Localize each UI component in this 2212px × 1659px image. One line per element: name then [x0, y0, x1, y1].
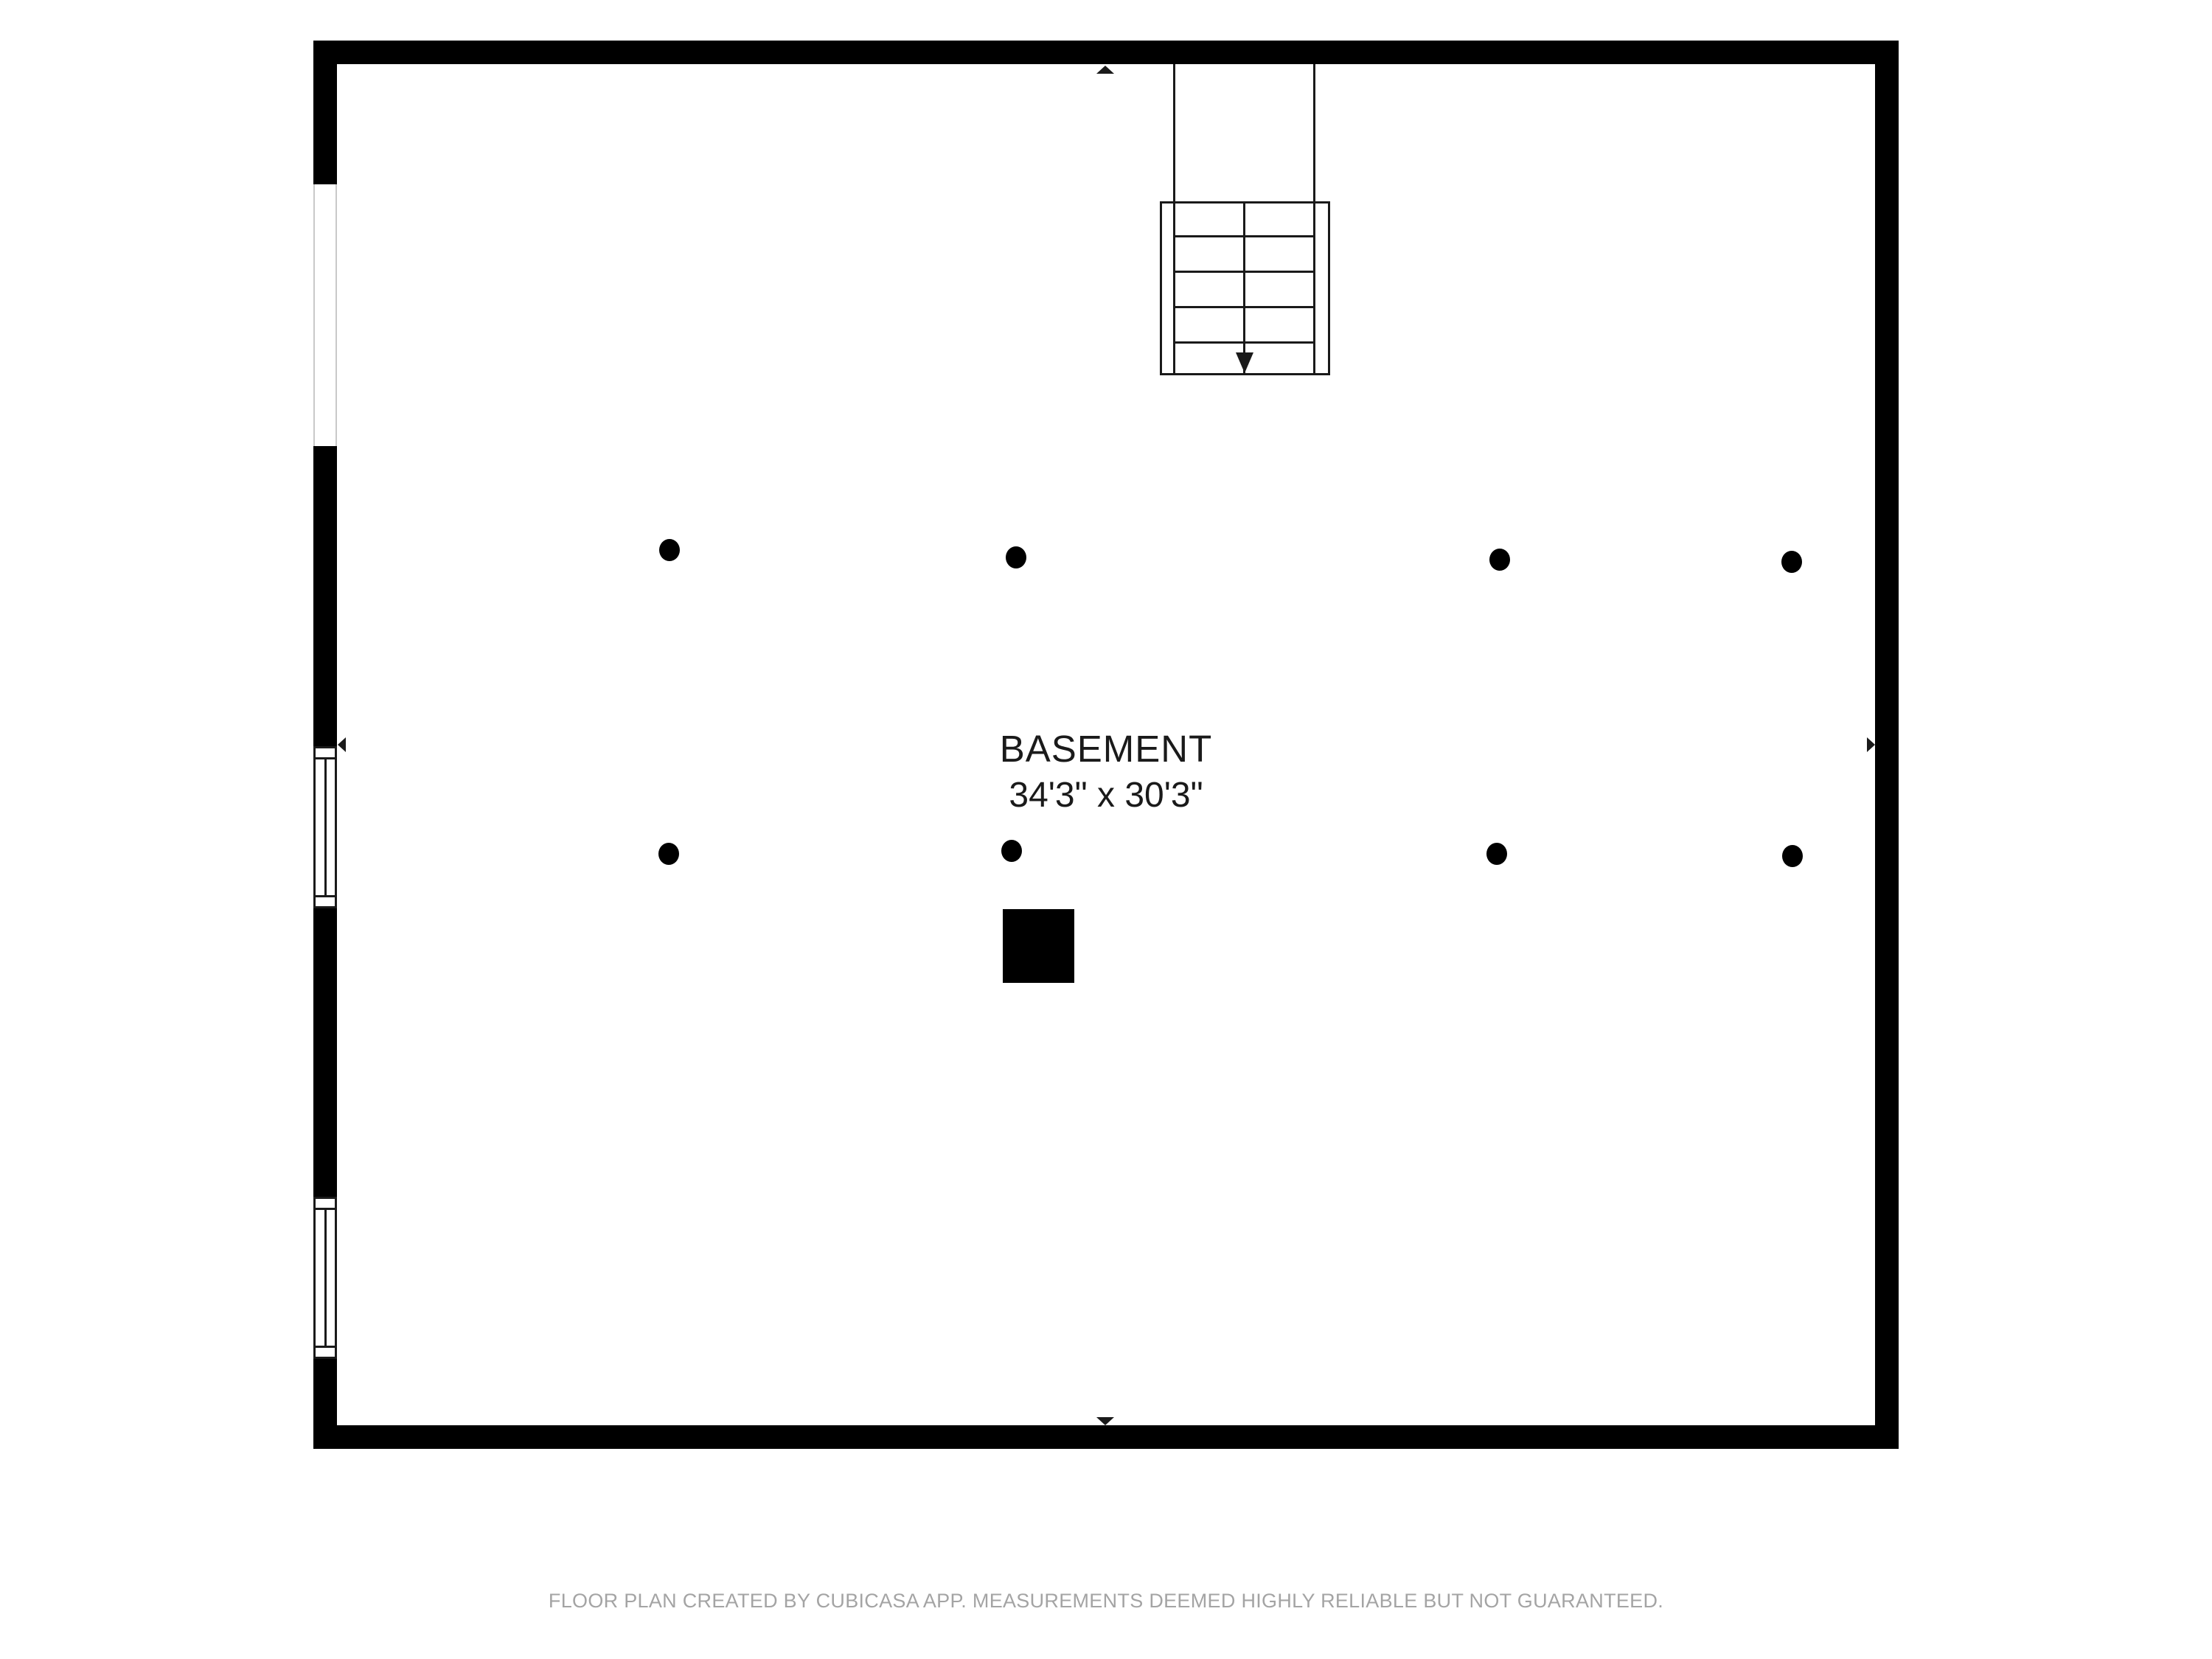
arrow-down-icon — [1096, 1417, 1114, 1425]
room-name: BASEMENT — [1000, 727, 1213, 771]
furnace-square — [1003, 909, 1074, 983]
window-glass-line — [324, 759, 327, 895]
left-wall-window-lower — [313, 1197, 337, 1359]
room-label: BASEMENT 34'3" x 30'3" — [1000, 727, 1213, 818]
arrow-right-icon — [1867, 737, 1875, 752]
stair-center-line — [1243, 201, 1245, 375]
window-frame-line — [316, 1346, 335, 1348]
window-glass-line — [324, 1210, 327, 1346]
footer-disclaimer: FLOOR PLAN CREATED BY CUBICASA APP. MEAS… — [549, 1590, 1663, 1613]
room-dimensions: 34'3" x 30'3" — [1000, 773, 1213, 818]
window-frame-line — [316, 895, 335, 897]
floorplan-page: BASEMENT 34'3" x 30'3" FLOOR PLAN CREATE… — [0, 0, 2212, 1659]
arrow-up-icon — [1096, 66, 1114, 74]
left-wall-opening — [313, 184, 337, 446]
stair-down-arrow-icon — [1236, 352, 1253, 373]
arrow-left-icon — [338, 737, 346, 752]
left-wall-window-upper — [313, 746, 337, 908]
